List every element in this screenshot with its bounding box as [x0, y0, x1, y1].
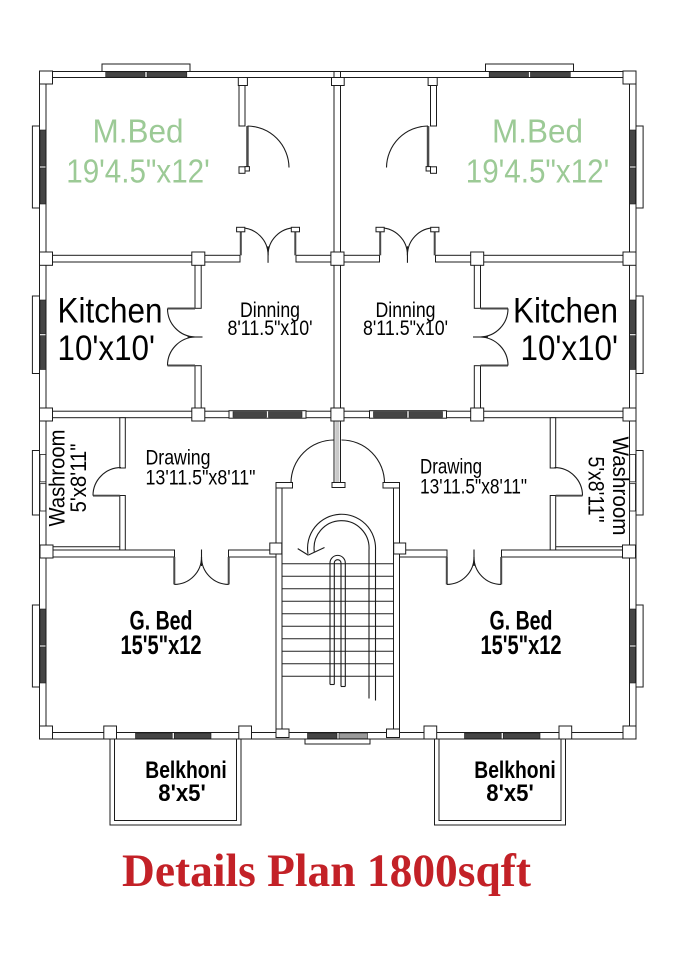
- svg-text:Kitchen: Kitchen: [58, 292, 163, 331]
- svg-text:M.Bed: M.Bed: [492, 113, 583, 150]
- svg-text:13'11.5"x8'11": 13'11.5"x8'11": [146, 467, 256, 490]
- svg-text:8'x5': 8'x5': [486, 780, 534, 807]
- svg-text:19'4.5"x12': 19'4.5"x12': [466, 153, 610, 190]
- svg-text:8'11.5"x10': 8'11.5"x10': [363, 317, 448, 340]
- svg-text:10'x10': 10'x10': [521, 329, 619, 368]
- svg-text:Washroom: Washroom: [608, 437, 633, 536]
- svg-text:13'11.5"x8'11": 13'11.5"x8'11": [420, 476, 527, 499]
- svg-text:15'5"x12: 15'5"x12: [121, 630, 202, 660]
- svg-text:5'x8'11": 5'x8'11": [66, 444, 91, 513]
- svg-text:15'5"x12: 15'5"x12: [481, 630, 562, 660]
- svg-text:Details Plan 1800sqft: Details Plan 1800sqft: [122, 845, 531, 897]
- svg-text:8'11.5"x10': 8'11.5"x10': [228, 317, 313, 340]
- svg-text:10'x10': 10'x10': [58, 329, 156, 368]
- svg-text:8'x5': 8'x5': [158, 780, 206, 807]
- svg-text:M.Bed: M.Bed: [93, 113, 184, 150]
- svg-text:5'x8'11": 5'x8'11": [584, 457, 609, 523]
- svg-text:19'4.5"x12': 19'4.5"x12': [66, 153, 210, 190]
- svg-text:Kitchen: Kitchen: [513, 292, 618, 331]
